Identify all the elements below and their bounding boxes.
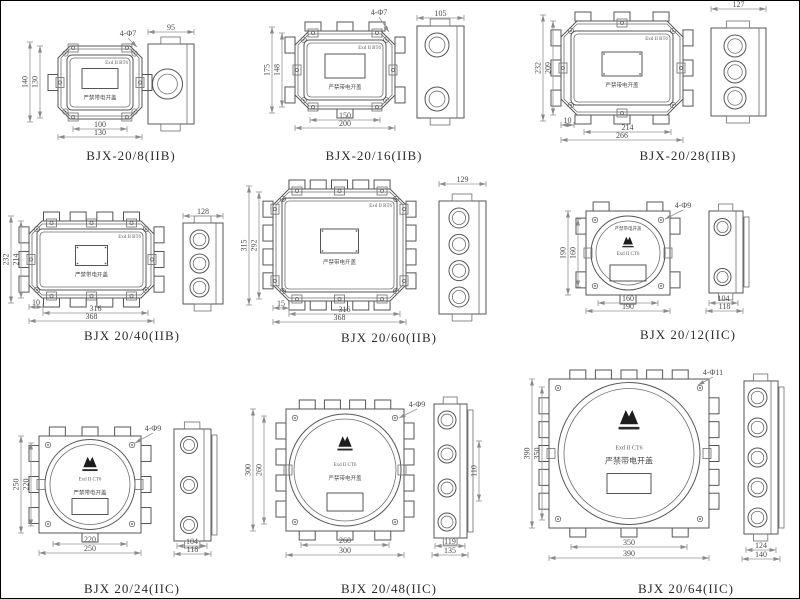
dimension-arrow [458,16,465,20]
cover-clamp [703,449,711,459]
dimension-arrow [774,557,781,561]
dimension-arrow [435,544,442,548]
cable-entry-lug [285,87,295,103]
dimension-label: 250 [84,544,96,553]
dimension-arrow [530,522,534,529]
cover-clamp [372,29,382,37]
dimension-label: 95 [167,23,175,32]
dimension-arrow [39,551,46,555]
ex-marking-text: Exd II CT6 [615,446,642,452]
window-screw [356,250,358,252]
dimension-arrow [270,107,274,114]
front-view: Exd II BT6严禁带电开盖 [551,12,693,124]
dimension-label: 220 [22,479,31,491]
entry-hole-inner [441,448,453,460]
window-screw [77,247,79,249]
dimension-arrow [459,544,466,548]
window-screw [603,53,605,55]
brand-logo-icon [83,457,96,467]
front-view: Exd II CT6严禁带电开盖 [539,370,719,537]
dimension-arrow [19,436,23,443]
panel-caption: BJX-20/8(IIB) [86,148,176,163]
panel-bjx-20-48: Exd II CT6严禁带电开盖4-Φ930026026030011011913… [244,397,483,596]
dimension-label: 250 [12,479,21,491]
dimension-arrow [540,387,544,394]
dimension-arrow [742,557,749,561]
entry-hole [153,69,183,99]
cable-entry-lug [647,202,663,211]
box-outline [58,46,142,119]
entry-hole-inner [193,257,206,270]
entry-hole-inner [441,482,453,494]
entry-hole-inner [429,37,445,53]
cover-clamp [400,276,408,286]
cover-screw-center [394,417,396,419]
panel-bjx-20-12: 严禁带电开盖Exd II CT64-Φ9190160160190104118BJ… [559,201,750,342]
dimension-arrow [28,42,32,49]
cable-entry-lug [369,22,385,31]
cover-clamp [127,292,137,300]
cable-entry-lug [683,60,693,76]
dimension-arrow [38,112,42,119]
cover-screw-center [672,30,674,32]
hole-callout: 4-Φ9 [145,424,162,433]
dimension-arrow [121,127,128,131]
cable-entry-lug [375,400,391,409]
window-screw [603,73,605,75]
dimension-arrow [389,126,396,130]
warning-text: 严禁带电开盖 [83,94,117,102]
dimension-label: 390 [623,549,635,558]
nameplate-window [76,246,108,266]
cover-clamp [372,103,382,111]
mounting-foot [726,116,749,123]
dimension-arrow [247,299,251,306]
cable-entry-lug [551,90,561,106]
cover-edge [744,217,749,287]
dimension-arrow [270,27,274,34]
nameplate-window [602,52,642,76]
cable-entry-lug [709,493,719,509]
cable-entry-lug [551,30,561,46]
cover-clamp [617,109,627,117]
cable-entry-lug [404,475,414,491]
front-view: Exd II BT6严禁带电开盖 [19,212,164,307]
cable-entry-lug [299,531,315,540]
cover-screw-center [660,285,662,287]
dimension-label: 209 [544,62,553,74]
dimension-arrow [257,192,261,199]
panel-bjx-20-16: Exd II BT6严禁带电开盖4-Φ7105175148150200BJX-2… [263,8,465,163]
dimension-label: 260 [339,536,351,545]
dimension-arrow [665,130,672,134]
cable-entry-lug [575,115,591,124]
dimension-arrow [681,545,688,549]
dimension-arrow [439,182,446,186]
cover-clamp [293,65,301,75]
cable-entry-lug [276,449,286,465]
mounting-foot [430,19,450,26]
side-view [439,194,486,321]
cover-clamp [559,63,567,73]
dimension-arrow [566,289,570,296]
cover-clamp [56,78,64,88]
dimension-arrow [28,116,32,123]
cable-entry-lug [49,427,65,436]
box-outline [286,409,404,531]
box-outline [29,221,154,298]
hole-callout: 4-Φ9 [675,201,692,210]
entry-hole-inner [441,516,453,528]
dimension-label: 118 [719,302,731,311]
dimension-label: 232 [534,62,543,74]
panel-bjx-20-64: Exd II CT6严禁带电开盖4-Φ11390350350390124140B… [523,368,785,596]
cable-entry-lug [539,422,549,438]
front-view: Exd II BT6严禁带电开盖 [263,180,416,310]
dimension-label: 232 [2,254,11,266]
dimension-arrow [286,553,293,557]
dimension-arrow [29,319,36,323]
cover-clamp [292,187,302,195]
side-view [174,422,217,548]
entry-hole [449,261,469,281]
round-cover-inner [564,389,694,519]
cover-screw-center [36,228,38,230]
dimension-arrow [257,293,261,300]
side-view [709,204,749,300]
dimension-label: 350 [623,538,635,547]
cover-clamp [122,113,132,121]
panel-bjx-20-60: Exd II BT6严禁带电开盖12931529215316368BJX 20/… [240,175,487,345]
nameplate-window [327,493,363,511]
cable-entry-lug [570,528,586,537]
dimensions: 4-Φ9250220220250104118 [12,424,212,557]
dimension-arrow [711,7,718,11]
cable-entry-lug [289,180,305,189]
front-view: 严禁带电开盖Exd II CT6 [576,202,680,304]
cover-clamp [47,219,57,227]
dimension-arrow [374,118,381,122]
cover-clamp [135,480,143,490]
entry-hole-inner [452,290,465,303]
entry-hole [724,35,746,57]
panel-bjx-20-8: Exd II BT6严禁带电开盖4-Φ795140130100130BJX-20… [21,23,195,163]
brand-logo-icon [623,237,633,245]
dimension-arrow [398,413,406,419]
cable-entry-lug [576,218,586,234]
cable-entry-lug [353,180,369,189]
cable-entry-lug [653,115,669,124]
cover-clamp [292,295,302,303]
cable-entry-lug [70,298,86,307]
cable-entry-lug [263,273,273,289]
round-cover [558,383,700,525]
mounting-foot [161,37,180,44]
dimension-label: 160 [569,247,578,259]
entry-hole-inner [452,238,465,251]
panel-bjx-20-40: Exd II BT6严禁带电开盖12823221410316368BJX 20/… [2,207,224,343]
side-body [744,381,778,534]
cover-screw-center [294,521,296,523]
cable-entry-lug [374,301,390,310]
entry-hole [724,87,746,109]
cover-screw-center [134,53,136,55]
cover-clamp [398,465,406,475]
warning-text: 严禁带电开盖 [73,489,107,497]
cable-entry-lug [653,12,669,21]
entry-hole-inner [183,439,194,450]
window-screw [639,53,641,55]
cable-entry-lug [670,218,680,234]
dimension-arrow [310,118,317,122]
dimension-arrow [477,441,481,448]
ex-marking-text: Exd II BT6 [118,235,141,240]
dimension-arrow [280,101,284,108]
entry-hole-inner [452,211,465,224]
panel-bjx-20-28: Exd II BT6严禁带电开盖12723220910214266BJX-20/… [534,1,767,163]
cover-clamp [335,187,345,195]
window-screw [356,230,358,232]
dimension-arrow [58,135,65,139]
side-body [711,28,766,116]
entry-hole-inner [193,281,206,294]
dimension-arrow [289,312,296,316]
dimension-arrow [177,544,184,548]
cable-entry-lug [647,370,663,379]
cover-plate [571,31,673,105]
cable-entry-lug [48,75,58,91]
cable-entry-lug [299,400,315,409]
cover-clamp [271,276,279,286]
cable-entry-lug [141,445,151,461]
cover-clamp [87,219,97,227]
cover-clamp [308,103,318,111]
cable-entry-lug [406,201,416,217]
cable-entry-lug [406,249,416,265]
dimension-label: 119 [444,537,456,546]
dimension-arrow [53,542,60,546]
entry-hole-inner [728,39,743,54]
dimension-label: 200 [339,119,351,128]
cable-entry-lug [539,469,549,485]
cable-entry-lug [285,37,295,53]
cover-screw-center [557,387,559,389]
cable-entry-lug [672,528,688,537]
dimension-label: 129 [457,175,469,184]
cable-entry-lug [576,272,586,288]
brand-wordmark [619,427,640,430]
cover-screw-center [47,523,49,525]
cable-entry-lug [310,301,326,310]
cover-clamp [547,449,555,459]
cable-entry-lug [404,423,414,439]
cable-entry-lug [29,477,39,493]
dimension-arrow [301,543,308,547]
dimension-arrow [262,416,266,423]
dimension-label: 300 [244,464,253,476]
brand-wordmark [622,246,633,247]
dimension-label: 300 [339,546,351,555]
front-view: Exd II BT6严禁带电开盖 [285,22,405,118]
cover-screw-center [557,518,559,520]
ex-marking-text: Exd II BT6 [645,37,668,42]
nameplate-window [610,265,646,281]
dimension-label: 140 [21,76,30,88]
entry-hole-inner [728,65,743,80]
cover-screw-center [385,39,387,41]
cover-clamp [677,63,685,73]
dimension-arrow [551,109,555,116]
dimension-arrow [576,219,580,226]
dimension-label: 127 [733,1,745,9]
dimension-arrow [432,553,439,557]
dimension-label: 390 [523,448,532,460]
dimension-arrow [541,15,545,22]
dimension-arrow [19,527,23,534]
dimension-arrow [398,553,405,557]
window-screw [105,247,107,249]
cable-entry-lug [551,60,561,76]
cover-clamp [335,295,345,303]
hole-callout: 4-Φ7 [371,8,388,17]
dimension-arrow [38,46,42,53]
cable-entry-lug [404,501,414,517]
dimension-arrow [19,221,23,228]
entry-hole-inner [717,271,728,282]
dimension-arrow [183,214,190,218]
dimension-arrow [148,319,155,323]
ex-marking-text: Exd II CT6 [617,252,640,257]
dimension-label: 118 [187,545,199,554]
mounting-foot [754,534,768,541]
dimension-arrow [188,30,195,34]
warning-text: 严禁带电开盖 [323,258,357,266]
hole-callout: 4-Φ9 [409,400,426,409]
cable-entry-lug [595,370,611,379]
box-outline [39,436,141,533]
dimension-arrow [709,301,716,305]
cover-screw-center [303,39,305,41]
dimension-label: 220 [84,535,96,544]
dimension-arrow [677,138,684,142]
dimension-arrow [73,127,80,131]
cover-clamp [47,292,57,300]
entry-hole [449,234,469,254]
dimension-arrow [732,301,739,305]
cover-screw-center [672,104,674,106]
cable-entry-lug [570,370,586,379]
front-view: Exd II CT6严禁带电开盖 [29,427,151,542]
cover-clamp [271,204,279,214]
side-body [183,223,223,304]
entry-hole-inner [452,264,465,277]
ex-marking-text: Exd II CT6 [334,463,357,468]
cable-entry-lug [374,180,390,189]
dimension-arrow [576,281,580,288]
dimension-arrow [652,301,659,305]
mounting-foot [443,397,457,404]
ex-marking-text: Exd II BT6 [105,61,128,66]
dimension-label: 10 [32,298,40,307]
cable-entry-lug [670,272,680,288]
dimension-label: 10 [564,116,572,125]
dimension-arrow [136,135,143,139]
window-screw [639,73,641,75]
cable-entry-lug [124,212,140,221]
cable-entry-lug [263,225,273,241]
cover-plate-inner [285,201,394,289]
panel-caption: BJX 20/64(IIC) [638,581,734,596]
cable-entry-lug [353,301,369,310]
dimension-arrow [273,320,280,324]
warning-text: 严禁带电开盖 [605,456,653,466]
window-screw [322,250,324,252]
dimension-arrow [251,409,255,416]
dimensions: 4-Φ795140130100130 [21,23,195,140]
dimension-arrow [394,312,401,316]
cover-screw-center [570,104,572,106]
round-cover [289,414,401,526]
cable-entry-lug [593,202,609,211]
brand-wordmark [82,469,97,471]
dimension-arrow [480,182,487,186]
mounting-foot [161,124,180,131]
cable-entry-lug [44,298,60,307]
cable-entry-lug [337,22,353,31]
cable-entry-lug [70,212,86,221]
entry-hole-inner [193,233,206,246]
nameplate-window [607,474,651,494]
dimension-label: 135 [444,546,456,555]
cover-clamp [389,65,397,75]
cable-entry-lug [276,501,286,517]
dimension-arrow [217,214,224,218]
cover-screw-center [131,444,133,446]
dimension-arrow [541,115,545,122]
dimension-arrow [551,21,555,28]
cover-clamp [136,78,144,88]
dimension-label: 175 [263,64,272,76]
nameplate-window [72,499,108,515]
cable-entry-lug [709,469,719,485]
cable-entry-lug [263,249,273,265]
nameplate-window [82,69,118,89]
cover-screw-center [570,30,572,32]
nameplate-window [325,54,365,78]
dimension-arrow [703,556,710,560]
dimension-arrow [417,16,424,20]
cable-entry-lug [539,493,549,509]
cover-screw-center [47,444,49,446]
nameplate-window [321,229,359,253]
dimension-arrow [135,551,142,555]
mounting-foot [452,314,472,321]
dimension-label: 128 [197,207,209,216]
ex-marking-text: Exd II CT6 [79,478,102,483]
dimension-arrow [530,379,534,386]
dimension-label: 130 [94,128,106,137]
cable-entry-lug [539,398,549,414]
cover-clamp [400,204,408,214]
cover-screw-center [303,99,305,101]
dimension-arrow [706,309,713,313]
cable-entry-lug [404,449,414,465]
cable-entry-lug [621,370,637,379]
cover-clamp [37,480,45,490]
junction-box-drawing-canvas: Exd II BT6严禁带电开盖4-Φ795140130100130BJX-20… [1,1,800,599]
entry-hole-inner [751,481,764,494]
cable-entry-lug [683,90,693,106]
